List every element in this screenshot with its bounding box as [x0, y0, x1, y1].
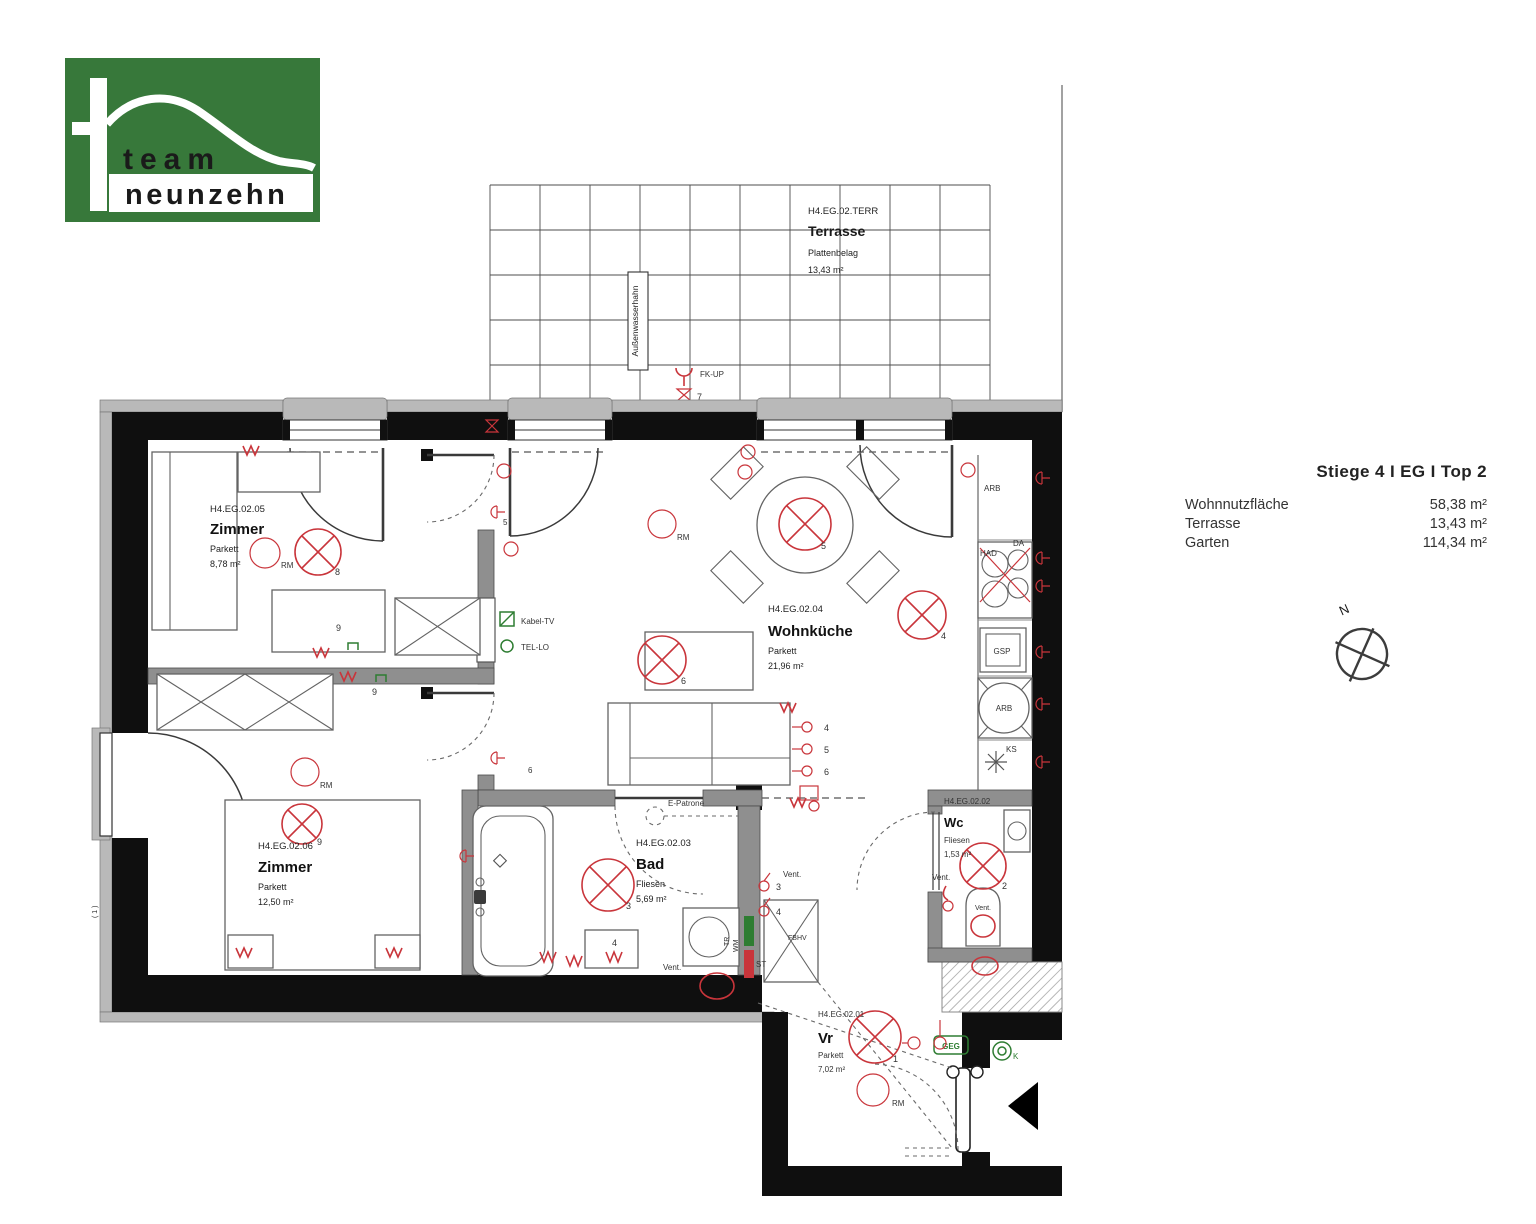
room-code: H4.EG.02.06 — [258, 841, 313, 852]
balcony-door-zimmer2 — [92, 728, 112, 840]
neighbor-hatch-area — [942, 962, 1062, 1012]
switch-number-6: 6 — [528, 766, 533, 775]
rm-label: RM — [320, 781, 333, 790]
margin-note: ( 1 ) — [92, 906, 99, 918]
room-area: 12,50 m² — [258, 897, 294, 907]
terrace-area: 13,43 m² — [808, 265, 844, 275]
label-bad: H4.EG.02.03 Bad Fliesen 5,69 m² — [636, 838, 691, 904]
terrace-door-wohnkueche — [860, 445, 952, 537]
tel-lo-label: TEL-LO — [521, 643, 549, 652]
room-area: 21,96 m² — [768, 661, 804, 671]
terrace-floor: Plattenbelag — [808, 248, 858, 258]
light-number-4: 4 — [941, 631, 946, 641]
ok-vent-icon: K — [993, 1042, 1019, 1061]
ok-k-label: K — [1013, 1052, 1019, 1061]
room-code: H4.EG.02.02 — [944, 797, 991, 806]
room-name: Bad — [636, 856, 664, 873]
switch-number-6: 6 — [824, 767, 829, 777]
rm-label: RM — [281, 561, 294, 570]
vent-label-vr: Vent. — [783, 870, 801, 879]
wardrobe-icon — [395, 598, 480, 655]
rm-label: RM — [892, 1099, 905, 1108]
floor-drain-fk-up: FK-UP 7 — [676, 368, 724, 402]
floor-plan-drawing: H4.EG.02.TERR Terrasse Plattenbelag 13,4… — [0, 0, 1536, 1224]
e-patrone-label: E-Patrone — [668, 799, 705, 808]
riser-red-icon — [744, 950, 754, 978]
terrace-tile-grid — [490, 185, 990, 410]
room-code: H4.EG.02.05 — [210, 504, 265, 515]
light-number-9: 9 — [317, 837, 322, 847]
entrance-door — [872, 1064, 983, 1152]
riser-green-icon — [744, 916, 754, 946]
switch-number-3: 3 — [776, 882, 781, 892]
furniture-number: 9 — [372, 687, 377, 697]
room-floor: Parkett — [818, 1051, 844, 1060]
outdoor-tap-label: Außenwasserhahn — [630, 285, 640, 356]
floorplan-page: team neunzehn Stiege 4 I EG I Top 2 Wohn… — [0, 0, 1536, 1224]
kitchen-hood-label: DA — [1013, 539, 1025, 548]
fk-up-label: FK-UP — [700, 370, 724, 379]
dryer-label: TR — [724, 937, 731, 946]
switch-number-5: 5 — [824, 745, 829, 755]
installation-shaft-icon: FBHV — [764, 900, 818, 982]
entrance-direction-triangle-icon — [1008, 1082, 1038, 1130]
light-number-3: 3 — [626, 901, 631, 911]
vr-switches — [902, 1020, 946, 1049]
fridge-snowflake-icon — [985, 751, 1007, 773]
vent-label-bad: Vent. — [663, 963, 681, 972]
door-zimmer1 — [421, 449, 494, 522]
light-kueche-icon — [898, 591, 946, 639]
room-name: Wc — [944, 815, 964, 830]
washer-dryer-icon: TR WM — [683, 908, 740, 966]
media-outlets: Kabel-TV TEL-LO — [500, 612, 555, 652]
sofa-icon — [608, 703, 790, 785]
room-name: Zimmer — [210, 521, 264, 538]
room-code: H4.EG.02.03 — [636, 838, 691, 849]
room-code: H4.EG.02.01 — [818, 1010, 865, 1019]
room-floor: Parkett — [258, 882, 287, 892]
furniture-number: 9 — [336, 623, 341, 633]
window-wohnkueche — [757, 398, 952, 452]
room-name: Wohnküche — [768, 623, 853, 640]
kitchen-fridge-label: KS — [1006, 745, 1017, 754]
kitchen-sink-label: ARB — [996, 704, 1012, 713]
bad-fixtures: 4 TR WM Vent. E-Patrone — [473, 799, 740, 999]
switch-number-4: 4 — [824, 723, 829, 733]
label-wohnkueche: H4.EG.02.04 Wohnküche Parkett 21,96 m² — [768, 604, 853, 671]
room-floor: Fliesen — [944, 836, 970, 845]
kitchen-stove-label: HAD — [980, 549, 997, 558]
washbasin-icon — [585, 930, 638, 968]
room-area: 5,69 m² — [636, 894, 667, 904]
light-number-1: 1 — [893, 1054, 898, 1064]
washer-label: WM — [733, 939, 740, 952]
room-area: 1,53 m² — [944, 850, 971, 859]
label-zimmer1: H4.EG.02.05 Zimmer Parkett 8,78 m² — [210, 504, 265, 569]
switch-number-5: 5 — [503, 518, 508, 527]
light-number-6: 6 — [681, 676, 686, 686]
room-floor: Fliesen — [636, 879, 665, 889]
door-zimmer2 — [421, 687, 494, 760]
window-hall — [508, 398, 612, 452]
kabel-tv-label: Kabel-TV — [521, 617, 555, 626]
room-floor: Parkett — [210, 544, 239, 554]
light-number-8: 8 — [335, 567, 340, 577]
terrace-label-block: H4.EG.02.TERR Terrasse Plattenbelag 13,4… — [808, 206, 878, 275]
room-area: 7,02 m² — [818, 1065, 845, 1074]
furniture-wohnkueche — [608, 447, 899, 785]
room-code: H4.EG.02.04 — [768, 604, 823, 615]
room-floor: Parkett — [768, 646, 797, 656]
washbasin-number: 4 — [612, 938, 617, 948]
terrace-name: Terrasse — [808, 223, 866, 239]
terrace-code: H4.EG.02.TERR — [808, 206, 878, 217]
neighbor-continuation-marks — [905, 1148, 952, 1156]
room-area: 8,78 m² — [210, 559, 241, 569]
wc-basin-icon — [1004, 810, 1030, 852]
light-number-2: 2 — [1002, 881, 1007, 891]
st-label: ST — [756, 960, 766, 969]
rm-label: RM — [677, 533, 690, 542]
room-name: Zimmer — [258, 859, 312, 876]
toilet-icon: Vent. — [966, 888, 1000, 946]
kitchen-strip: ARB HAD DA GSP ARB — [978, 455, 1032, 790]
room-name: Vr — [818, 1030, 833, 1047]
switch-number-4: 4 — [776, 907, 781, 917]
fbhv-label: FBHV — [788, 935, 807, 942]
door-wc — [857, 812, 939, 890]
terrace-door-hall — [510, 448, 598, 536]
light-number-5: 5 — [821, 541, 826, 551]
window-zimmer1 — [283, 398, 387, 452]
outdoor-tap: Außenwasserhahn — [628, 272, 648, 370]
kitchen-dishwasher-label: GSP — [994, 647, 1011, 656]
vent-label-toilet: Vent. — [975, 905, 991, 912]
kitchen-worktop-label: ARB — [984, 484, 1000, 493]
wardrobe-icon — [157, 674, 333, 730]
furniture-zimmer2: 9 — [157, 674, 420, 970]
bathtub-icon — [473, 806, 553, 976]
vent-label-wc: Vent. — [932, 873, 950, 882]
